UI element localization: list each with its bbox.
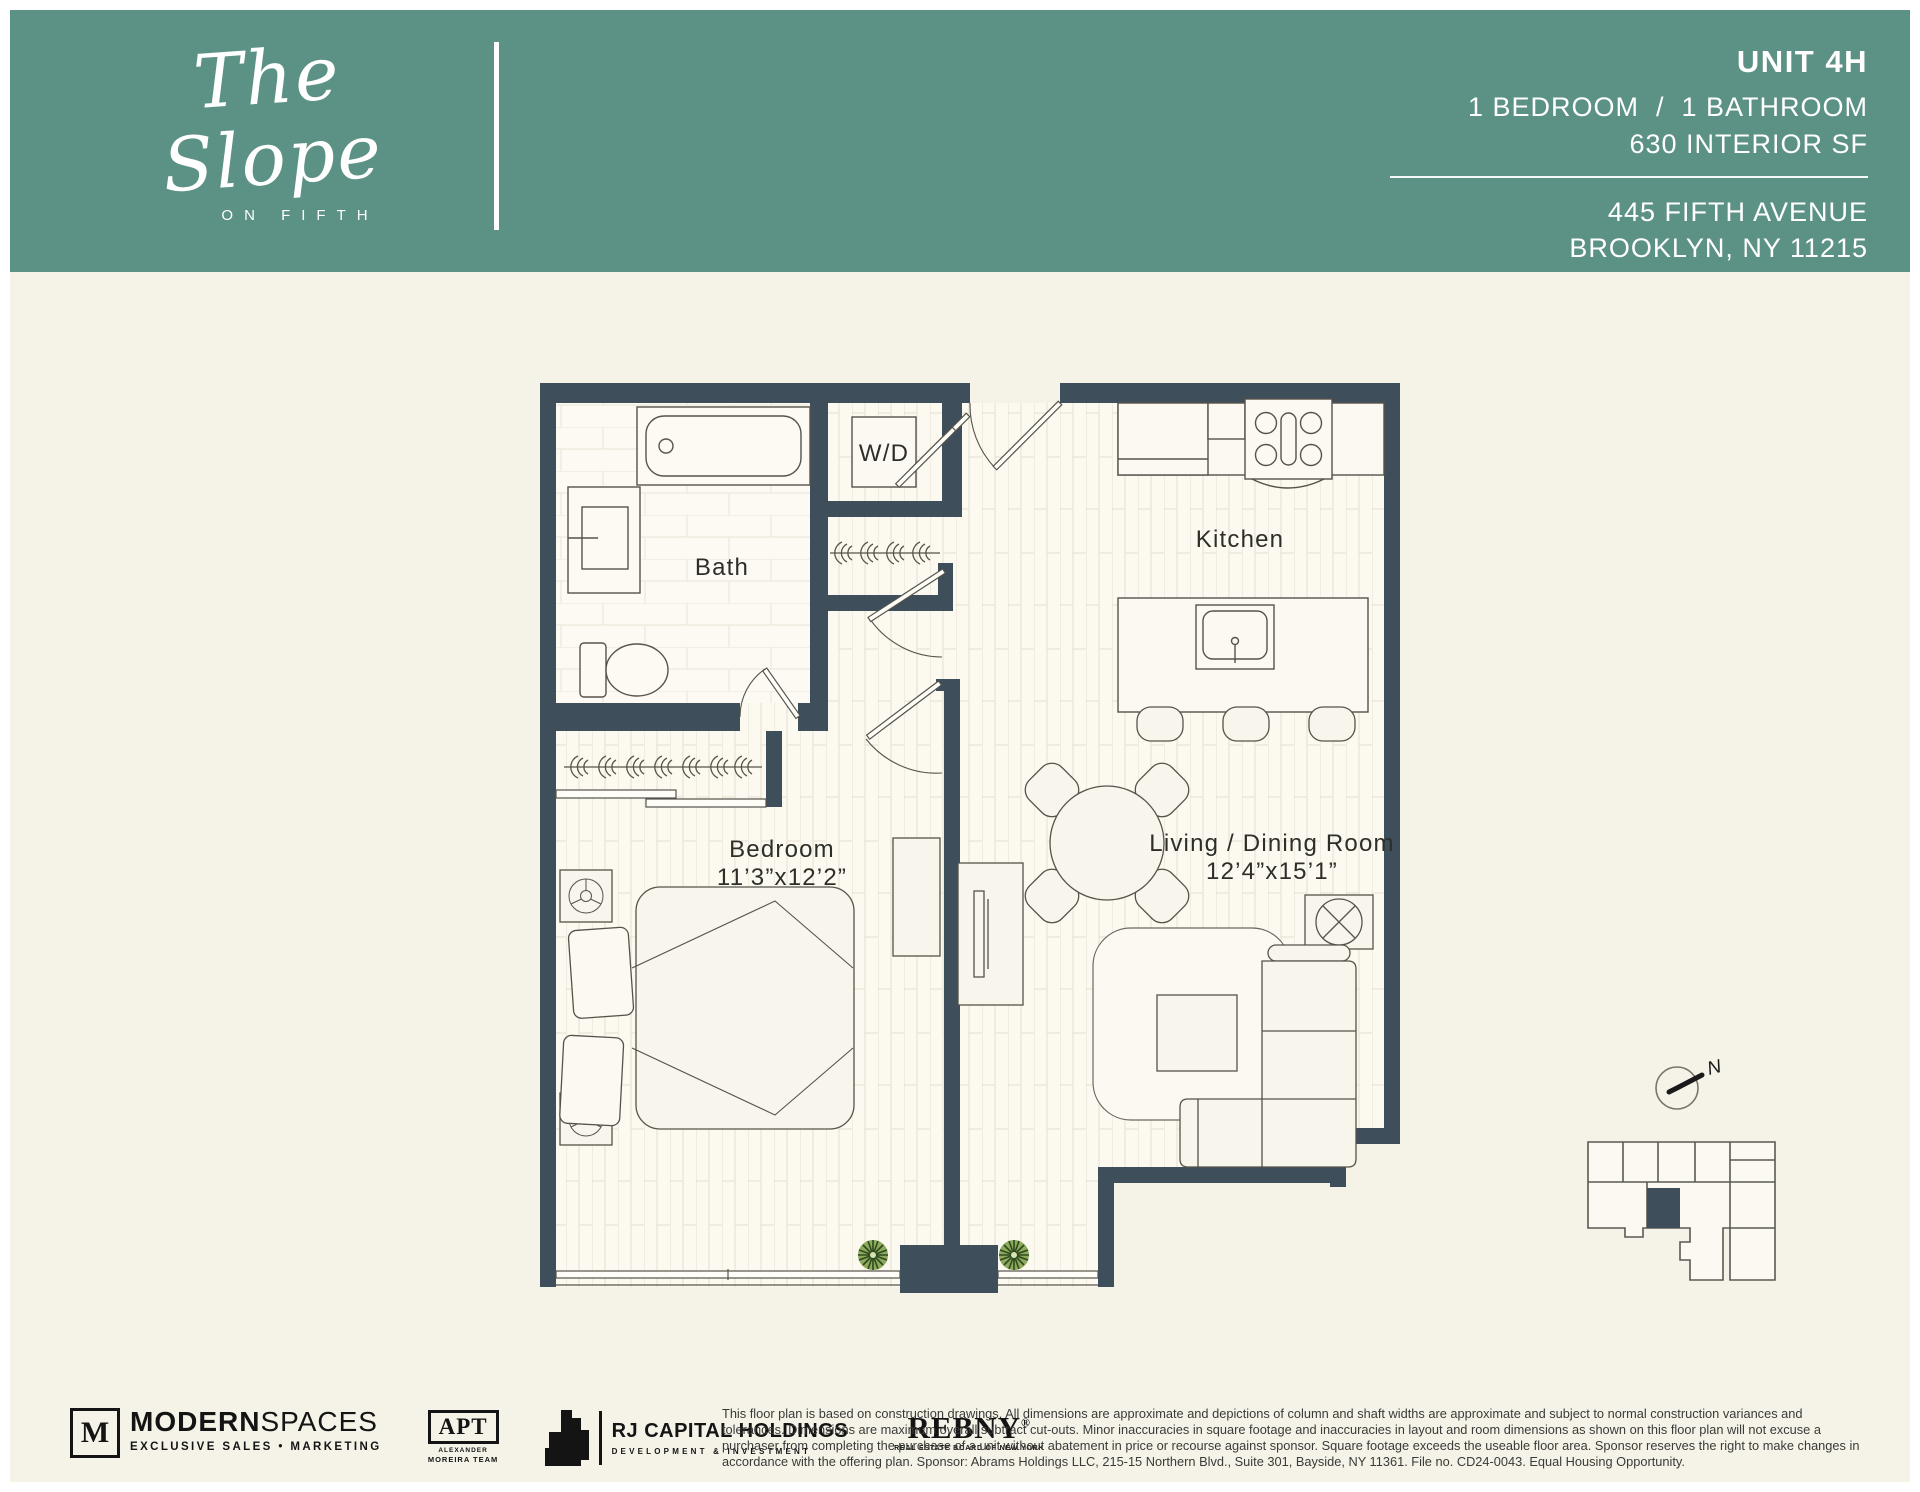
kitchen-island xyxy=(1118,598,1368,712)
address-line1: 445 FIFTH AVENUE xyxy=(1390,194,1868,230)
unit-title: UNIT 4H xyxy=(1390,44,1868,80)
brochure-page: The Slope ON FIFTH UNIT 4H 1 BEDROOM / 1… xyxy=(10,10,1910,1482)
header-divider xyxy=(494,42,499,230)
kitchen-label: Kitchen xyxy=(1196,526,1284,553)
floorplan: W/D xyxy=(540,383,1400,1298)
bathtub xyxy=(637,407,810,485)
coffee-table xyxy=(1157,995,1237,1071)
plant-left xyxy=(858,1240,888,1270)
modernspaces-name-light: SPACES xyxy=(260,1406,378,1437)
brand-logo: The Slope ON FIFTH xyxy=(80,38,460,224)
tv-console xyxy=(958,863,1023,1005)
modernspaces-mark: M xyxy=(70,1408,120,1458)
end-table xyxy=(1305,895,1373,949)
building-keyplan xyxy=(1588,1142,1775,1280)
bath-label: Bath xyxy=(695,554,749,581)
vanity-sink xyxy=(568,487,640,593)
living-dims: 12’4”x15’1” xyxy=(1206,858,1338,885)
bedroom-label: Bedroom xyxy=(729,836,835,863)
nightstand-top xyxy=(560,870,612,922)
compass-icon: N xyxy=(1656,1056,1724,1109)
apt-line2: MOREIRA TEAM xyxy=(428,1455,498,1464)
dresser xyxy=(893,838,940,956)
floorplan-drawing: W/D xyxy=(540,383,1400,1293)
modernspaces-name-bold: MODERN xyxy=(130,1406,260,1437)
legal-disclaimer: This floor plan is based on construction… xyxy=(722,1406,1867,1470)
modernspaces-logo: M MODERNSPACES EXCLUSIVE SALES • MARKETI… xyxy=(70,1408,382,1458)
keyplan: N xyxy=(1585,1045,1855,1360)
brand-script-text: The Slope xyxy=(75,25,465,214)
modernspaces-tagline: EXCLUSIVE SALES • MARKETING xyxy=(130,1441,382,1453)
stove xyxy=(1245,399,1332,488)
header-band: The Slope ON FIFTH UNIT 4H 1 BEDROOM / 1… xyxy=(10,10,1910,272)
apt-line1: ALEXANDER xyxy=(438,1447,487,1454)
unit-info: UNIT 4H 1 BEDROOM / 1 BATHROOM 630 INTER… xyxy=(1390,44,1868,267)
plant-right xyxy=(999,1240,1029,1270)
rj-divider xyxy=(599,1411,602,1465)
toilet xyxy=(580,643,668,697)
bedroom-dims: 11’3”x12’2” xyxy=(717,864,847,891)
apt-mark: APT xyxy=(428,1410,499,1444)
island-stools xyxy=(1137,707,1355,741)
keyplan-unit-highlight xyxy=(1647,1188,1680,1228)
living-label: Living / Dining Room xyxy=(1149,830,1394,857)
modernspaces-name: MODERNSPACES xyxy=(130,1408,382,1436)
apt-logo: APT ALEXANDER MOREIRA TEAM xyxy=(428,1410,499,1464)
header-rule xyxy=(1390,176,1868,178)
building-icon xyxy=(545,1410,589,1466)
address-line2: BROOKLYN, NY 11215 xyxy=(1390,230,1868,266)
unit-specs: 1 BEDROOM / 1 BATHROOM xyxy=(1390,92,1868,123)
wd-label: W/D xyxy=(859,440,909,467)
compass-label: N xyxy=(1705,1056,1724,1080)
unit-sf: 630 INTERIOR SF xyxy=(1390,129,1868,160)
